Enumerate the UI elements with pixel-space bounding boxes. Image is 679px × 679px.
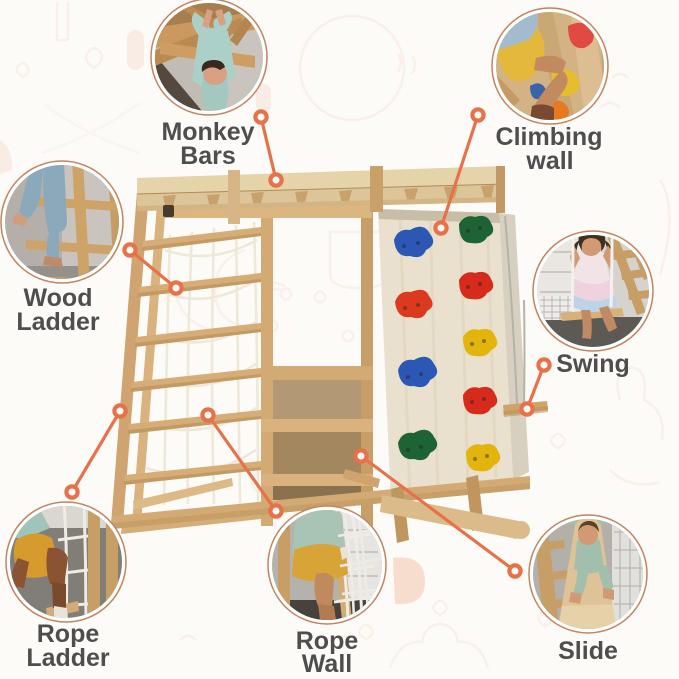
svg-text:Slide: Slide: [558, 637, 618, 665]
svg-text:Bars: Bars: [180, 142, 236, 170]
svg-text:Ladder: Ladder: [16, 308, 100, 336]
svg-text:wall: wall: [525, 147, 573, 175]
svg-text:Ladder: Ladder: [26, 644, 110, 672]
svg-text:Wall: Wall: [302, 650, 352, 678]
svg-text:Swing: Swing: [556, 350, 630, 378]
